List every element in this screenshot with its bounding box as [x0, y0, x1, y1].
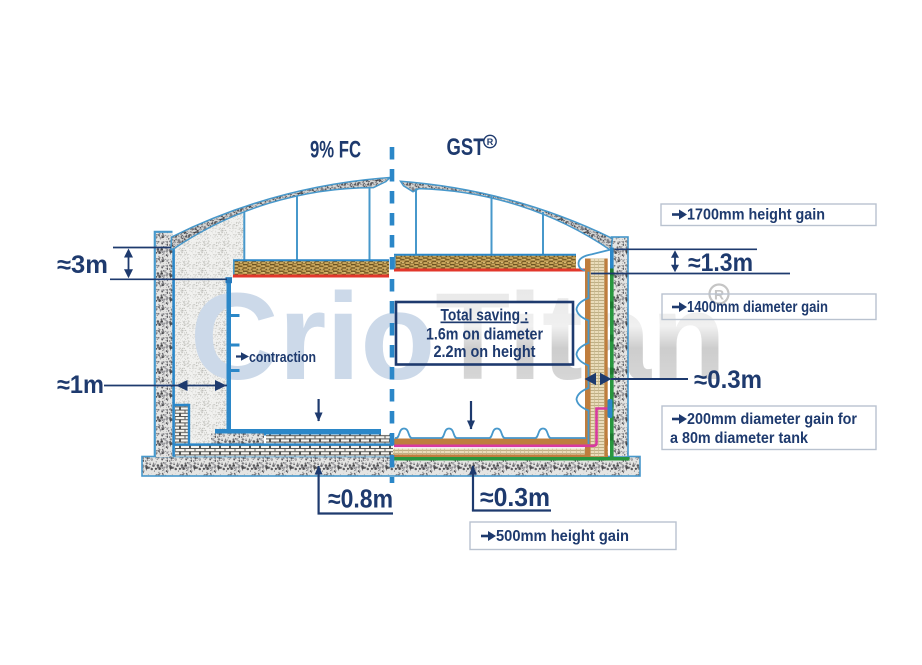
svg-text:1.6m on diameter: 1.6m on diameter	[426, 325, 543, 344]
svg-text:≈0.8m: ≈0.8m	[328, 484, 393, 514]
svg-text:GST: GST	[447, 134, 485, 161]
svg-text:2.2m on height: 2.2m on height	[434, 342, 536, 361]
svg-text:contraction: contraction	[249, 349, 316, 366]
svg-text:a 80m diameter tank: a 80m diameter tank	[670, 430, 808, 447]
svg-text:≈0.3m: ≈0.3m	[694, 366, 762, 394]
svg-text:9% FC: 9% FC	[310, 137, 361, 164]
svg-text:Total saving :: Total saving :	[441, 306, 529, 325]
svg-text:≈1m: ≈1m	[57, 371, 104, 399]
svg-text:≈1.3m: ≈1.3m	[688, 249, 753, 277]
svg-text:≈0.3m: ≈0.3m	[480, 482, 550, 512]
svg-text:1400mm diameter gain: 1400mm diameter gain	[687, 299, 828, 316]
svg-text:500mm height gain: 500mm height gain	[496, 528, 629, 545]
svg-text:R: R	[487, 137, 494, 147]
svg-text:≈3m: ≈3m	[57, 251, 108, 279]
svg-text:1700mm height gain: 1700mm height gain	[687, 207, 825, 224]
svg-text:200mm diameter gain for: 200mm diameter gain for	[687, 411, 857, 428]
